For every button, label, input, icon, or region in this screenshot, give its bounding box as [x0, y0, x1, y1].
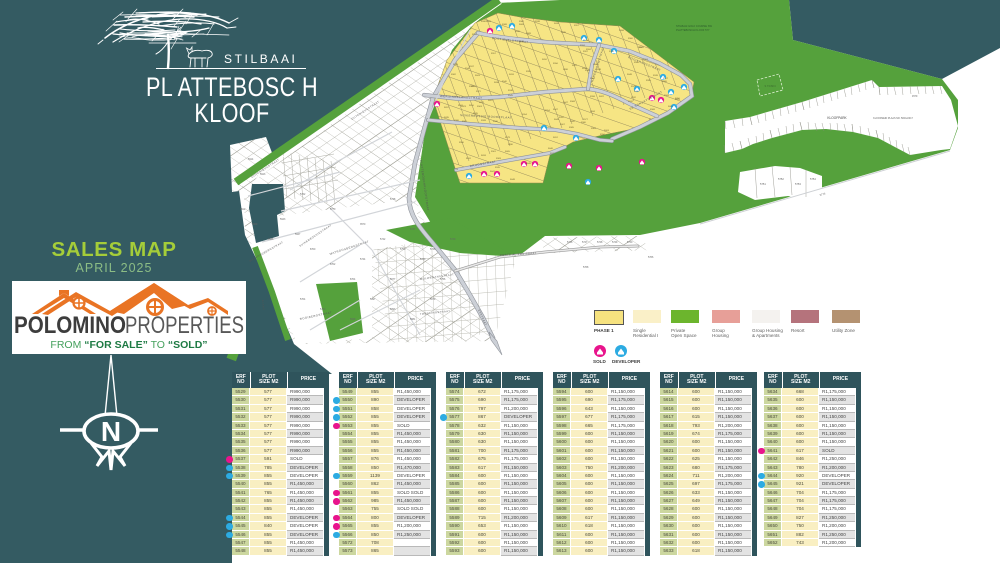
- svg-text:5622: 5622: [572, 65, 578, 67]
- svg-text:5540: 5540: [515, 31, 521, 33]
- svg-text:5585: 5585: [569, 127, 575, 129]
- svg-text:5581: 5581: [519, 21, 525, 23]
- svg-text:5558: 5558: [596, 69, 602, 71]
- svg-text:5535: 5535: [561, 32, 567, 34]
- svg-text:5747: 5747: [410, 228, 416, 231]
- svg-text:5747: 5747: [582, 241, 588, 244]
- svg-text:5612: 5612: [444, 107, 450, 109]
- svg-text:5770: 5770: [330, 208, 336, 211]
- svg-text:5638: 5638: [494, 82, 500, 84]
- svg-text:5537: 5537: [469, 66, 475, 68]
- svg-text:5646: 5646: [548, 148, 554, 150]
- svg-text:5554: 5554: [522, 114, 528, 116]
- svg-text:5588: 5588: [502, 24, 508, 26]
- svg-text:STILBAAI GOLF COURSE SW: STILBAAI GOLF COURSE SW: [676, 24, 712, 28]
- svg-text:POLOMINO: POLOMINO: [14, 312, 126, 339]
- svg-text:5748: 5748: [597, 241, 603, 244]
- svg-text:5936: 5936: [268, 238, 274, 241]
- svg-text:5635: 5635: [554, 23, 560, 25]
- svg-text:5557: 5557: [574, 25, 580, 27]
- svg-text:5594: 5594: [580, 45, 586, 47]
- svg-text:5538: 5538: [519, 41, 525, 43]
- svg-text:5698: 5698: [350, 318, 356, 321]
- svg-text:5679: 5679: [430, 298, 436, 301]
- svg-text:5587: 5587: [590, 78, 596, 80]
- svg-text:5730: 5730: [420, 258, 426, 261]
- svg-text:5535: 5535: [495, 167, 501, 169]
- svg-text:5746: 5746: [430, 248, 436, 251]
- svg-text:5540: 5540: [465, 68, 471, 70]
- svg-text:3570: 3570: [360, 223, 366, 226]
- svg-text:FROM “FOR SALE” TO “SOLD”: FROM “FOR SALE” TO “SOLD”: [50, 339, 207, 351]
- svg-text:5750: 5750: [400, 248, 406, 251]
- svg-text:5536: 5536: [508, 90, 514, 92]
- svg-text:5645: 5645: [554, 119, 560, 121]
- svg-text:5530: 5530: [493, 121, 499, 123]
- svg-text:5568: 5568: [570, 101, 576, 103]
- svg-text:5750: 5750: [627, 241, 633, 244]
- svg-text:5650: 5650: [675, 98, 681, 100]
- svg-text:5618: 5618: [509, 74, 515, 76]
- svg-text:5947: 5947: [295, 233, 301, 236]
- svg-text:5532: 5532: [469, 86, 475, 88]
- svg-text:5647: 5647: [553, 109, 559, 111]
- svg-text:5612: 5612: [553, 137, 559, 139]
- svg-text:5605: 5605: [519, 24, 525, 26]
- svg-text:5610: 5610: [469, 105, 475, 107]
- svg-text:5746: 5746: [567, 241, 573, 244]
- svg-text:5550: 5550: [472, 34, 478, 36]
- svg-text:5914: 5914: [248, 158, 254, 161]
- svg-text:8704: 8704: [350, 278, 356, 281]
- svg-text:5621: 5621: [479, 102, 485, 104]
- svg-text:5648: 5648: [526, 163, 532, 165]
- svg-text:5564: 5564: [591, 128, 597, 130]
- svg-text:5646: 5646: [593, 64, 599, 66]
- svg-text:5556: 5556: [553, 63, 559, 65]
- svg-text:5578: 5578: [631, 86, 637, 88]
- svg-text:5622: 5622: [488, 100, 494, 102]
- svg-text:PROPERTIES: PROPERTIES: [125, 312, 244, 339]
- svg-text:5704: 5704: [300, 298, 306, 301]
- svg-text:5571: 5571: [476, 91, 482, 93]
- svg-text:5648: 5648: [627, 74, 633, 76]
- svg-text:5909: 5909: [252, 223, 258, 226]
- svg-text:5558: 5558: [619, 30, 625, 32]
- svg-text:5630: 5630: [582, 68, 588, 70]
- svg-text:5756: 5756: [440, 278, 446, 281]
- svg-text:5595: 5595: [646, 80, 652, 82]
- svg-text:5601: 5601: [668, 106, 674, 108]
- svg-text:5618: 5618: [481, 155, 487, 157]
- svg-text:5603: 5603: [604, 130, 610, 132]
- svg-text:5631: 5631: [466, 158, 472, 160]
- svg-text:5744: 5744: [360, 258, 366, 261]
- svg-text:5913: 5913: [260, 173, 266, 176]
- svg-text:5596: 5596: [453, 64, 459, 66]
- svg-text:5610: 5610: [542, 59, 548, 61]
- svg-text:5571: 5571: [639, 47, 645, 49]
- svg-text:5766: 5766: [648, 256, 654, 259]
- svg-text:5753: 5753: [795, 182, 801, 186]
- svg-text:5575: 5575: [583, 40, 589, 42]
- svg-text:5560: 5560: [628, 38, 634, 40]
- svg-text:PLATTEBOSCH KLOOF 577: PLATTEBOSCH KLOOF 577: [676, 28, 710, 32]
- svg-text:5762: 5762: [300, 193, 306, 196]
- svg-text:8700: 8700: [310, 248, 316, 251]
- svg-text:5579: 5579: [505, 137, 511, 139]
- svg-text:5534: 5534: [590, 111, 596, 113]
- svg-text:5597: 5597: [583, 51, 589, 53]
- svg-text:5749: 5749: [450, 238, 456, 241]
- svg-text:5592: 5592: [570, 121, 576, 123]
- svg-text:5703: 5703: [320, 308, 326, 311]
- svg-text:5638: 5638: [634, 91, 640, 93]
- svg-text:5545: 5545: [508, 95, 514, 97]
- svg-text:5768: 5768: [583, 266, 589, 269]
- svg-text:5636: 5636: [563, 69, 569, 71]
- svg-text:5569: 5569: [664, 95, 670, 97]
- svg-text:5697: 5697: [370, 298, 376, 301]
- svg-text:5561: 5561: [491, 151, 497, 153]
- svg-text:5532: 5532: [628, 101, 634, 103]
- svg-text:8702: 8702: [330, 263, 336, 266]
- svg-text:5561: 5561: [462, 121, 468, 123]
- svg-text:5563: 5563: [477, 106, 483, 108]
- svg-text:5752: 5752: [778, 177, 784, 181]
- svg-text:5635: 5635: [444, 117, 450, 119]
- svg-text:5581: 5581: [458, 105, 464, 107]
- svg-text:5748: 5748: [390, 198, 396, 201]
- svg-text:5553: 5553: [643, 59, 649, 61]
- svg-text:5648: 5648: [510, 179, 516, 181]
- svg-text:KLOOFPARK: KLOOFPARK: [827, 116, 847, 120]
- svg-text:5677: 5677: [390, 278, 396, 281]
- svg-text:5742: 5742: [380, 238, 386, 241]
- svg-text:S 73 82/4: S 73 82/4: [764, 84, 776, 88]
- svg-text:5622: 5622: [599, 96, 605, 98]
- svg-text:5532: 5532: [631, 97, 637, 99]
- svg-text:5580: 5580: [581, 122, 587, 124]
- svg-text:5582: 5582: [451, 74, 457, 76]
- svg-text:5943: 5943: [280, 218, 286, 221]
- svg-text:5557: 5557: [491, 53, 497, 55]
- svg-text:5540: 5540: [502, 81, 508, 83]
- svg-text:5554: 5554: [545, 110, 551, 112]
- svg-text:5681: 5681: [410, 318, 416, 321]
- svg-text:5538: 5538: [535, 21, 541, 23]
- svg-text:5555: 5555: [526, 71, 532, 73]
- svg-text:5912: 5912: [240, 208, 246, 211]
- svg-text:5599: 5599: [481, 120, 487, 122]
- svg-text:5558: 5558: [590, 96, 596, 98]
- svg-text:5647: 5647: [563, 102, 569, 104]
- svg-text:5589: 5589: [486, 21, 492, 23]
- svg-text:N: N: [101, 416, 121, 447]
- svg-text:5589: 5589: [526, 33, 532, 35]
- svg-text:5550: 5550: [609, 51, 615, 53]
- svg-text:5693: 5693: [390, 308, 396, 311]
- svg-text:5607: 5607: [560, 124, 566, 126]
- svg-text:5580: 5580: [459, 142, 465, 144]
- svg-text:5749: 5749: [612, 241, 618, 244]
- svg-text:5577: 5577: [583, 119, 589, 121]
- svg-text:5552: 5552: [559, 117, 565, 119]
- svg-text:5586: 5586: [454, 120, 460, 122]
- svg-text:KLOOFMEID PLAAS NR. 584G/2017: KLOOFMEID PLAAS NR. 584G/2017: [873, 117, 913, 120]
- svg-text:5586: 5586: [662, 81, 668, 83]
- svg-text:5635: 5635: [473, 113, 479, 115]
- svg-text:5643: 5643: [475, 75, 481, 77]
- svg-text:5546: 5546: [585, 70, 591, 72]
- svg-text:5605: 5605: [505, 151, 511, 153]
- svg-text:5751: 5751: [760, 182, 766, 186]
- svg-text:5630: 5630: [508, 144, 514, 146]
- svg-text:4579: 4579: [912, 95, 918, 98]
- svg-text:5547: 5547: [663, 78, 669, 80]
- svg-text:5540: 5540: [634, 62, 640, 64]
- svg-text:5583: 5583: [496, 158, 502, 160]
- svg-text:5754: 5754: [810, 177, 816, 181]
- svg-text:5641: 5641: [490, 171, 496, 173]
- svg-text:5568: 5568: [650, 109, 656, 111]
- svg-text:5539: 5539: [653, 75, 659, 77]
